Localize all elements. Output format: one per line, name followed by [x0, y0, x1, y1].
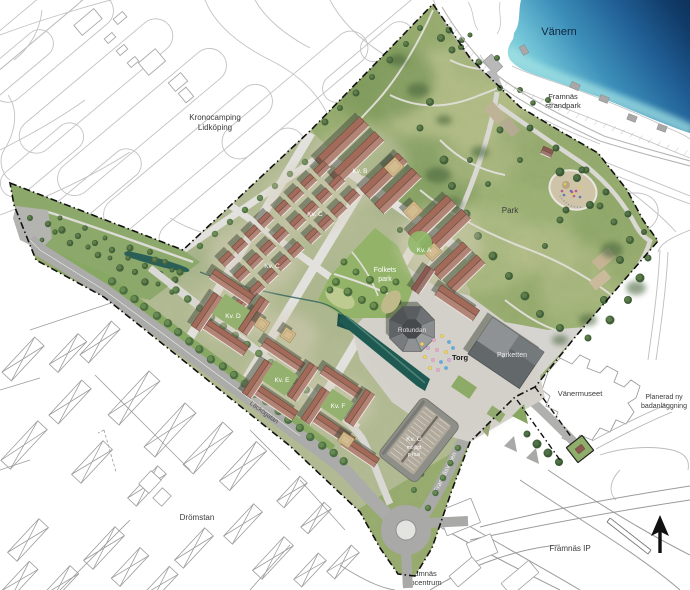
svg-text:Kv. A: Kv. A [417, 247, 432, 254]
svg-text:Kv. E: Kv. E [274, 377, 290, 384]
svg-text:Kv. F: Kv. F [331, 403, 346, 410]
svg-text:badanläggning: badanläggning [641, 403, 687, 410]
svg-text:Kv. B: Kv. B [352, 168, 367, 175]
svg-text:Kv. D: Kv. D [225, 313, 241, 320]
svg-text:Kv. G: Kv. G [406, 436, 422, 443]
svg-text:Parketten: Parketten [497, 352, 527, 359]
svg-text:Kv. C: Kv. C [264, 263, 280, 270]
svg-text:Kv. C: Kv. C [307, 211, 323, 218]
svg-text:Framnäs: Framnäs [548, 92, 578, 101]
svg-text:Kronocamping: Kronocamping [189, 113, 241, 122]
svg-text:park: park [378, 276, 392, 283]
svg-text:Folkets: Folkets [374, 267, 397, 274]
svg-text:Lidköping: Lidköping [198, 123, 232, 132]
svg-text:Park: Park [502, 206, 519, 215]
svg-text:Rotundan: Rotundan [398, 327, 427, 334]
svg-text:Vänermuseet: Vänermuseet [558, 389, 604, 398]
svg-text:Framnäs IP: Framnäs IP [549, 544, 590, 553]
svg-text:Planerad ny: Planerad ny [645, 394, 683, 401]
svg-text:Drömstan: Drömstan [180, 513, 215, 522]
svg-text:möjligt: möjligt [407, 445, 422, 451]
svg-text:Vänern: Vänern [541, 26, 576, 38]
svg-text:Torg: Torg [452, 353, 469, 362]
svg-text:p-hus: p-hus [408, 452, 421, 458]
